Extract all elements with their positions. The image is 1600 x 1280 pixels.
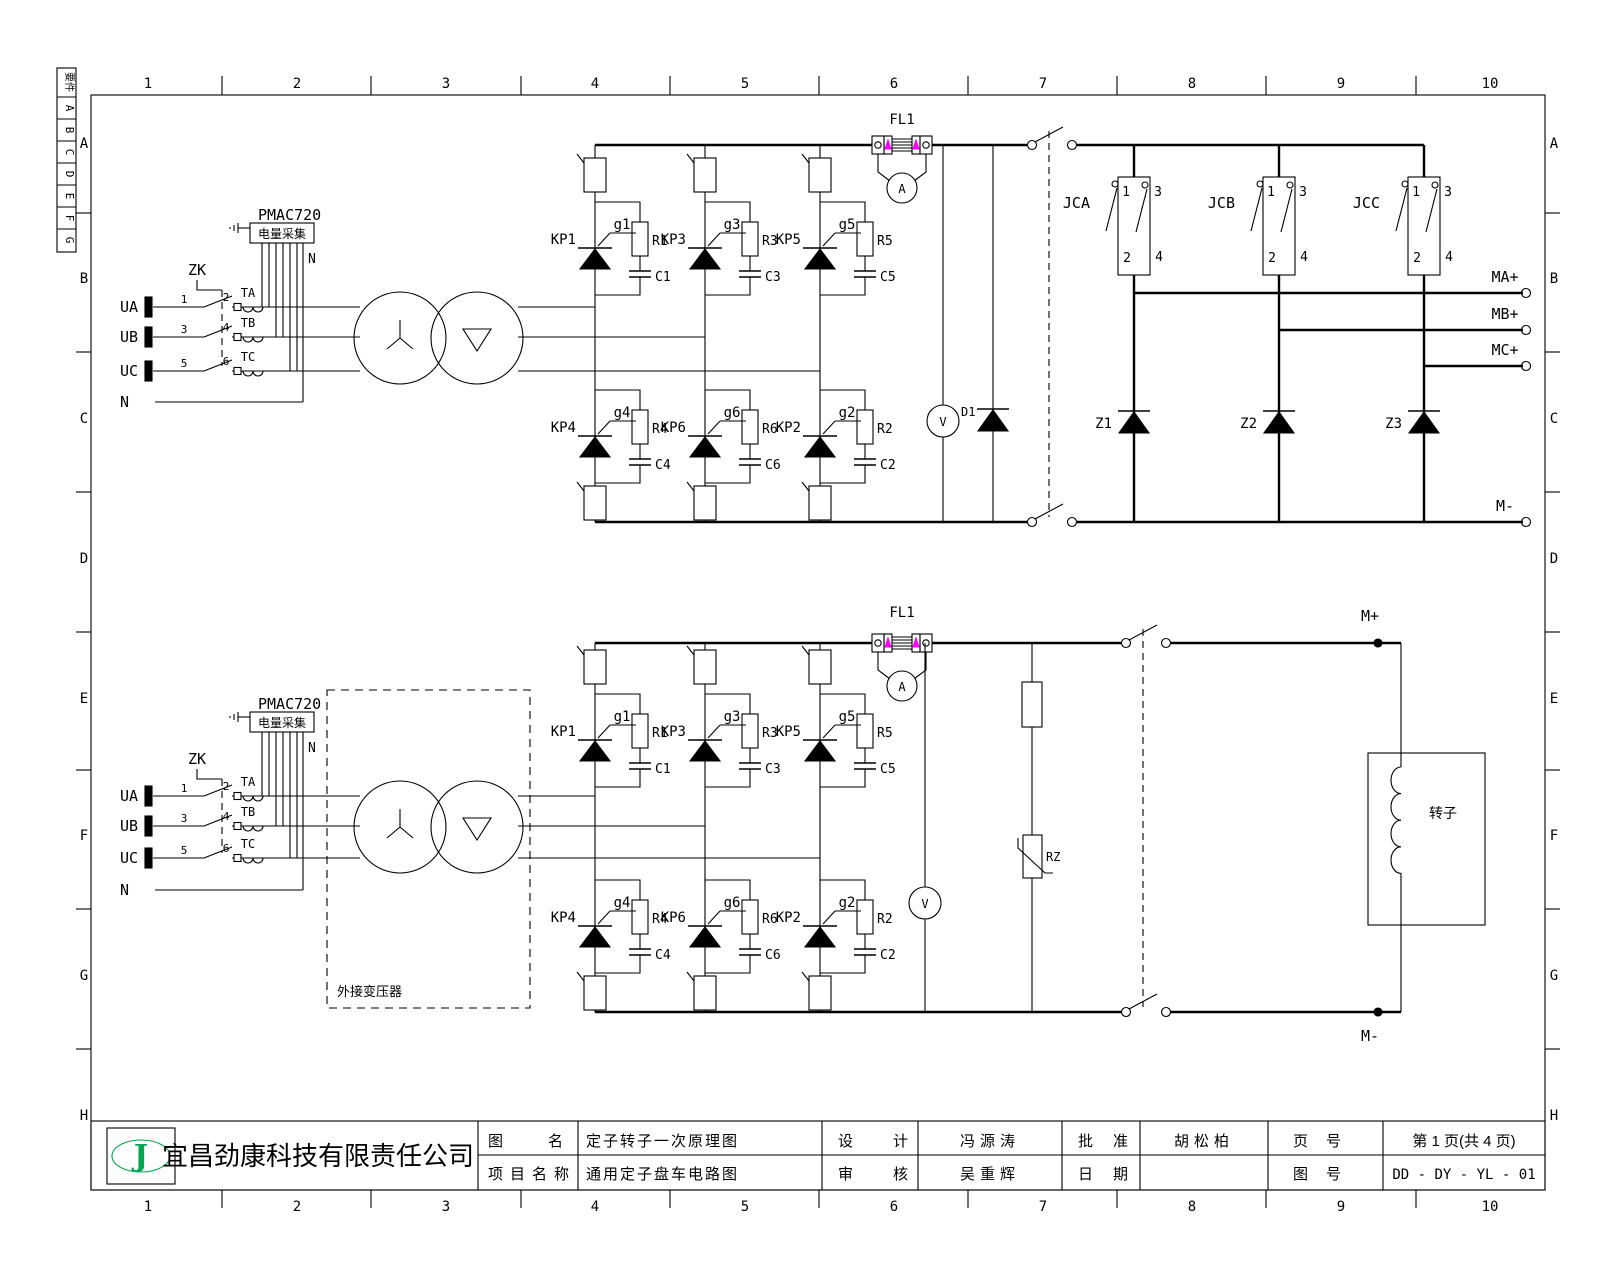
resistor-icon	[742, 410, 758, 444]
fuse-icon	[584, 976, 606, 1010]
resistor-icon	[857, 410, 873, 444]
label-g5: g5	[839, 217, 856, 233]
rev-cell: D	[63, 171, 76, 178]
label-c5: C5	[880, 762, 896, 777]
label-g6: g6	[724, 405, 741, 421]
row-letter: G	[1550, 968, 1558, 984]
pin-num: 2	[1413, 251, 1421, 266]
fuse-varistor-branch: RZ	[1018, 682, 1060, 878]
col-num: 6	[890, 1199, 898, 1215]
frame-ticks-left	[76, 213, 91, 1049]
thyristor-icon	[805, 741, 835, 761]
label-kp4: KP4	[551, 420, 576, 436]
contact-num: 2	[223, 780, 230, 793]
thyristor-cell-kp6: KP6 g6 R6 C6	[661, 390, 781, 520]
checker-name: 吴重辉	[960, 1166, 1020, 1183]
current-transformers: TA TB TC	[234, 775, 263, 863]
z-diodes: Z1 Z2 Z3	[1095, 411, 1440, 433]
pmac-title: PMAC720	[258, 695, 321, 713]
contact-num: 6	[223, 842, 230, 855]
fuse-icon	[694, 650, 716, 684]
fuse-icon	[809, 486, 831, 520]
frame-ticks-top	[222, 76, 1416, 95]
label-g1: g1	[614, 217, 631, 233]
label-c2: C2	[880, 458, 896, 473]
fuse-icon	[809, 650, 831, 684]
row-letter: A	[1550, 136, 1559, 152]
external-transformer-box: 外接变压器	[327, 690, 530, 1008]
label-g3: g3	[724, 709, 741, 725]
col-num: 8	[1188, 1199, 1196, 1215]
resistor-icon	[632, 410, 648, 444]
contactor-jcb: JCB 1 3 2 4	[1208, 145, 1308, 522]
revision-strip: 要件 A B C D E F G	[57, 68, 76, 252]
output-label-mpos: M+	[1361, 607, 1379, 625]
col-num: 5	[741, 1199, 749, 1215]
col-num: 3	[442, 76, 450, 92]
row-letter: D	[1550, 551, 1558, 567]
thyristor-cell-kp3: KP3 g3 R3 C3	[661, 646, 781, 787]
contactor-label: JCB	[1208, 194, 1235, 212]
label-kp6: KP6	[661, 910, 686, 926]
row-letter: E	[80, 691, 88, 707]
fuse-icon	[584, 158, 606, 192]
project-name-label: 项目名称	[488, 1166, 576, 1183]
fuse-icon	[584, 650, 606, 684]
row-letter: G	[80, 968, 88, 984]
terminal-bar	[145, 816, 152, 836]
col-num: 2	[293, 1199, 301, 1215]
phase-label-ua: UA	[120, 298, 138, 316]
label-c4: C4	[655, 458, 671, 473]
thyristor-icon	[690, 437, 720, 457]
pmac-n-label: N	[308, 252, 316, 267]
phase-label-ub: UB	[120, 817, 138, 835]
thyristor-icon	[580, 927, 610, 947]
inductor-icon	[1391, 767, 1401, 873]
frame-col-numbers-top: 1 2 3 4 5 6 7 8 9 10	[144, 76, 1499, 92]
label-kp2: KP2	[776, 420, 801, 436]
label-kp1: KP1	[551, 232, 576, 248]
output-label-mb: MB+	[1491, 305, 1518, 323]
breaker-zk: ZK 1 2 3 4 5 6	[181, 750, 232, 858]
wye-symbol	[387, 320, 413, 349]
ct-label-ta: TA	[241, 286, 256, 300]
label-d1: D1	[961, 405, 975, 419]
row-letter: H	[80, 1108, 88, 1124]
label-z1: Z1	[1095, 416, 1112, 432]
thyristor-cell-kp1: KP1 g1 R1 C1	[551, 154, 671, 295]
rotor-barring-circuit: UA UB UC N ZK 1 2 3 4 5 6 TA TB TC PMAC7…	[120, 605, 1485, 1045]
row-letter: A	[80, 136, 89, 152]
col-num: 3	[442, 1199, 450, 1215]
col-num: 5	[741, 76, 749, 92]
output-label-mneg: M-	[1496, 497, 1514, 515]
label-kp5: KP5	[776, 232, 801, 248]
diode-icon	[1119, 412, 1149, 433]
date-label: 日期	[1078, 1166, 1148, 1183]
neutral-label: N	[120, 393, 129, 411]
thyristor-cell-kp2: KP2 g2 R2 C2	[776, 880, 896, 1010]
contact-num: 4	[223, 810, 230, 823]
fuse-icon	[1022, 682, 1042, 727]
col-num: 8	[1188, 76, 1196, 92]
wye-symbol	[387, 809, 413, 838]
phase-label-uc: UC	[120, 362, 138, 380]
col-num: 10	[1482, 76, 1499, 92]
contact-num: 1	[181, 782, 188, 795]
ct-label-tb: TB	[241, 316, 255, 330]
label-g5: g5	[839, 709, 856, 725]
terminal-dot	[1374, 639, 1382, 647]
pin-num: 4	[1300, 250, 1308, 265]
pmac-title: PMAC720	[258, 206, 321, 224]
approver-name: 胡松柏	[1174, 1133, 1234, 1150]
frame-row-letters-right: A B C D E F G H	[1550, 136, 1559, 1124]
thyristor-cell-kp3: KP3 g3 R3 C3	[661, 154, 781, 295]
thyristor-cell-kp4: KP4 g4 R4 C4	[551, 880, 671, 1010]
fuse-icon	[809, 976, 831, 1010]
contact-num: 3	[181, 323, 188, 336]
pmac-box-label: 电量采集	[258, 715, 306, 730]
resistor-icon	[632, 714, 648, 748]
rev-cell: E	[63, 193, 76, 200]
approve-label: 批准	[1078, 1133, 1148, 1150]
pin-num: 1	[1267, 185, 1275, 200]
breaker-label: ZK	[188, 261, 206, 279]
breaker-zk: ZK 1 2 3 4 5 6	[181, 261, 232, 371]
neutral-label: N	[120, 881, 129, 899]
label-g2: g2	[839, 405, 856, 421]
fuse-icon	[809, 158, 831, 192]
resistor-icon	[742, 714, 758, 748]
rotor-label: 转子	[1429, 805, 1457, 821]
contact-num: 3	[181, 812, 188, 825]
dc-disconnect	[1028, 127, 1077, 527]
breaker-label: ZK	[188, 750, 206, 768]
thyristor-icon	[690, 741, 720, 761]
pin-num: 1	[1122, 185, 1130, 200]
thyristor-cell-kp4: KP4 g4 R4 C4	[551, 390, 671, 520]
varistor-icon	[1023, 835, 1042, 878]
label-g6: g6	[724, 895, 741, 911]
thyristor-icon	[805, 437, 835, 457]
check-label: 审核	[838, 1166, 948, 1183]
row-letter: C	[1550, 411, 1558, 427]
ct-label-ta: TA	[241, 775, 256, 789]
frame-ticks-right	[1545, 213, 1560, 1049]
terminal-bar	[145, 848, 152, 868]
label-rz: RZ	[1046, 850, 1060, 864]
voltmeter-letter: V	[939, 415, 946, 429]
ammeter-letter: A	[898, 182, 906, 196]
row-letter: C	[80, 411, 88, 427]
label-c3: C3	[765, 270, 781, 285]
col-num: 2	[293, 76, 301, 92]
label-c5: C5	[880, 270, 896, 285]
output-label-ma: MA+	[1491, 268, 1518, 286]
rev-cell: B	[63, 127, 76, 134]
label-g1: g1	[614, 709, 631, 725]
label-g4: g4	[614, 895, 631, 911]
row-letter: F	[80, 828, 88, 844]
output-label-mc: MC+	[1491, 341, 1518, 359]
thyristor-cell-kp5: KP5 g5 R5 C5	[776, 154, 896, 295]
col-num: 1	[144, 1199, 152, 1215]
contactor-jcc: JCC 1 3 2 4	[1353, 145, 1453, 522]
terminal-dot	[1374, 1008, 1382, 1016]
row-letter: F	[1550, 828, 1558, 844]
project-name-value: 通用定子盘车电路图	[586, 1165, 739, 1183]
label-z3: Z3	[1385, 416, 1402, 432]
phase-label-ua: UA	[120, 787, 138, 805]
pin-num: 3	[1444, 185, 1452, 200]
resistor-icon	[742, 222, 758, 256]
label-r5: R5	[877, 234, 893, 249]
ammeter-letter: A	[898, 680, 906, 694]
pin-num: 4	[1155, 250, 1163, 265]
row-letter: H	[1550, 1108, 1558, 1124]
label-c4: C4	[655, 948, 671, 963]
shunt-label: FL1	[889, 112, 914, 128]
thyristor-cell-kp1: KP1 g1 R1 C1	[551, 646, 671, 787]
label-c3: C3	[765, 762, 781, 777]
contact-num: 4	[223, 321, 230, 334]
contactor-label: JCA	[1063, 194, 1090, 212]
pin-num: 3	[1154, 185, 1162, 200]
dwg-no-label: 图号	[1293, 1166, 1359, 1183]
label-r2: R2	[877, 422, 893, 437]
title-block: J 宜昌劲康科技有限责任公司 图名 定子转子一次原理图 项目名称 通用定子盘车电…	[91, 1121, 1545, 1190]
designer-name: 冯源涛	[960, 1133, 1020, 1150]
pin-num: 2	[1123, 251, 1131, 266]
shunt-label: FL1	[889, 605, 914, 621]
label-g2: g2	[839, 895, 856, 911]
ct-label-tb: TB	[241, 805, 255, 819]
fuse-icon	[694, 976, 716, 1010]
cad-schematic-page: 1 2 3 4 5 6 7 8 9 10 1 2 3 4 5 6 7 8 9 1…	[0, 0, 1600, 1280]
delta-symbol	[463, 818, 491, 840]
col-num: 6	[890, 76, 898, 92]
frame-ticks-bottom	[222, 1190, 1416, 1208]
ct-label-tc: TC	[241, 837, 255, 851]
resistor-icon	[857, 714, 873, 748]
dc-disconnect	[1122, 625, 1171, 1017]
terminal-bar	[145, 327, 152, 347]
phase-label-uc: UC	[120, 849, 138, 867]
thyristor-icon	[690, 249, 720, 269]
contact-num: 2	[223, 291, 230, 304]
resistor-icon	[857, 900, 873, 934]
diode-icon	[978, 410, 1008, 431]
col-num: 4	[591, 76, 599, 92]
pmac-n-label: N	[308, 741, 316, 756]
col-num: 9	[1337, 76, 1345, 92]
logo-letter: J	[131, 1139, 148, 1174]
transformer-icon	[354, 292, 523, 384]
resistor-icon	[632, 222, 648, 256]
diode-icon	[1264, 412, 1294, 433]
current-transformers: TA TB TC	[234, 286, 263, 376]
rotor-box	[1368, 753, 1485, 925]
frame-row-letters-left: A B C D E F G H	[80, 136, 89, 1124]
contact-num: 5	[181, 844, 188, 857]
label-z2: Z2	[1240, 416, 1257, 432]
label-r2: R2	[877, 912, 893, 927]
design-label: 设计	[838, 1133, 948, 1150]
stator-primary-circuit: UA UB UC N ZK 1 2 3 4 5 6 TA TB TC PMAC7…	[120, 112, 1531, 527]
contactor-label: JCC	[1353, 194, 1380, 212]
pmac-box-label: 电量采集	[258, 226, 306, 241]
rotor-load: M+ 转子 M-	[1361, 607, 1485, 1045]
fuse-icon	[584, 486, 606, 520]
col-num: 9	[1337, 1199, 1345, 1215]
shunt-fl1: FL1 A	[872, 605, 932, 701]
frame-col-numbers-bottom: 1 2 3 4 5 6 7 8 9 10	[144, 1199, 1499, 1215]
thyristor-icon	[805, 927, 835, 947]
page-label: 页号	[1293, 1133, 1359, 1150]
label-g4: g4	[614, 405, 631, 421]
label-g3: g3	[724, 217, 741, 233]
col-num: 7	[1039, 1199, 1047, 1215]
phase-label-ub: UB	[120, 328, 138, 346]
thyristor-icon	[580, 437, 610, 457]
row-letter: B	[1550, 271, 1558, 287]
label-kp4: KP4	[551, 910, 576, 926]
label-kp5: KP5	[776, 724, 801, 740]
row-letter: B	[80, 271, 88, 287]
contact-num: 1	[181, 293, 188, 306]
ext-transformer-label: 外接变压器	[337, 984, 402, 999]
thyristor-icon	[805, 249, 835, 269]
drawing-name-value: 定子转子一次原理图	[586, 1133, 739, 1150]
thyristor-icon	[580, 249, 610, 269]
rev-cell: G	[63, 237, 76, 244]
rev-strip-header: 要件	[63, 72, 75, 92]
voltmeter-letter: V	[921, 897, 928, 911]
pin-num: 4	[1445, 250, 1453, 265]
col-num: 7	[1039, 76, 1047, 92]
motor-outputs: MA+ MB+ MC+ M-	[1134, 268, 1531, 527]
resistor-icon	[632, 900, 648, 934]
contact-num: 6	[223, 355, 230, 368]
terminal-bar	[145, 297, 152, 317]
label-c1: C1	[655, 270, 671, 285]
company-name: 宜昌劲康科技有限责任公司	[162, 1141, 474, 1171]
schematic-canvas: 1 2 3 4 5 6 7 8 9 10 1 2 3 4 5 6 7 8 9 1…	[0, 0, 1600, 1280]
label-kp3: KP3	[661, 232, 686, 248]
contactor-jca: JCA 1 3 2 4	[1063, 145, 1163, 522]
label-kp2: KP2	[776, 910, 801, 926]
dwg-no-value: DD - DY - YL - 01	[1392, 1167, 1535, 1183]
bridge-buses	[595, 643, 1401, 1012]
label-kp6: KP6	[661, 420, 686, 436]
freewheel-diode-d1: D1	[961, 405, 1009, 431]
col-num: 4	[591, 1199, 599, 1215]
delta-symbol	[463, 329, 491, 351]
label-c1: C1	[655, 762, 671, 777]
pin-num: 3	[1299, 185, 1307, 200]
rev-cell: C	[63, 149, 76, 156]
row-letter: E	[1550, 691, 1558, 707]
thyristor-icon	[690, 927, 720, 947]
output-label-mneg: M-	[1361, 1027, 1379, 1045]
label-c6: C6	[765, 458, 781, 473]
pin-num: 1	[1412, 185, 1420, 200]
resistor-icon	[857, 222, 873, 256]
diode-icon	[1409, 412, 1439, 433]
row-letter: D	[80, 551, 88, 567]
terminal-bar	[145, 786, 152, 806]
shunt-fl1: FL1 A	[872, 112, 932, 203]
label-kp3: KP3	[661, 724, 686, 740]
thyristor-cell-kp6: KP6 g6 R6 C6	[661, 880, 781, 1010]
ct-label-tc: TC	[241, 350, 255, 364]
contact-num: 5	[181, 357, 188, 370]
resistor-icon	[742, 900, 758, 934]
fuse-icon	[694, 486, 716, 520]
label-kp1: KP1	[551, 724, 576, 740]
page-value: 第 1 页(共 4 页)	[1412, 1132, 1515, 1150]
pin-num: 2	[1268, 251, 1276, 266]
fuse-icon	[694, 158, 716, 192]
rev-cell: A	[63, 105, 76, 112]
thyristor-icon	[580, 741, 610, 761]
col-num: 10	[1482, 1199, 1499, 1215]
col-num: 1	[144, 76, 152, 92]
label-c2: C2	[880, 948, 896, 963]
thyristor-cell-kp2: KP2 g2 R2 C2	[776, 390, 896, 520]
label-c6: C6	[765, 948, 781, 963]
label-r5: R5	[877, 726, 893, 741]
rev-cell: F	[63, 215, 76, 222]
terminal-bar	[145, 361, 152, 381]
